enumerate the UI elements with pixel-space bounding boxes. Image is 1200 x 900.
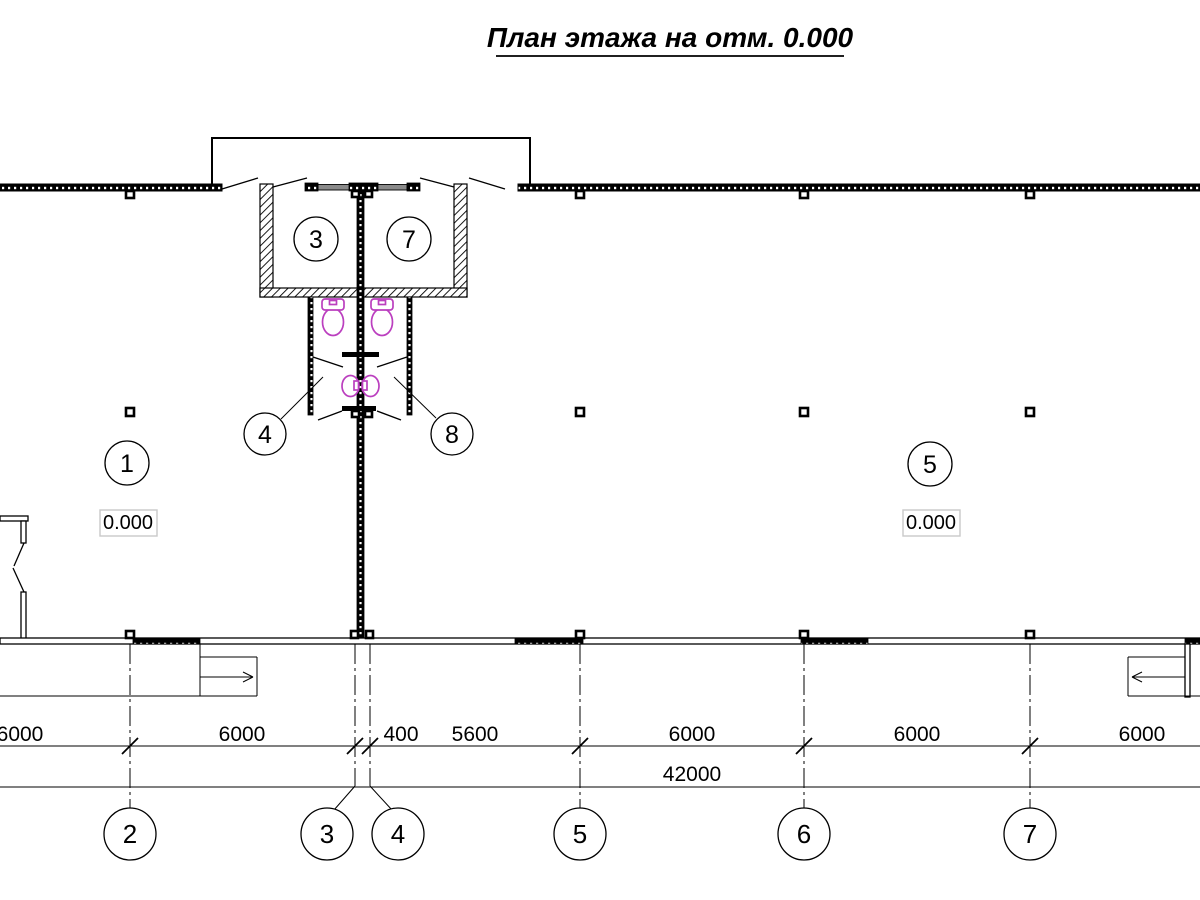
room-tag-7: 7 — [387, 217, 431, 261]
toilet-bowl-icon — [323, 309, 344, 336]
axis-label: 2 — [123, 819, 137, 849]
axis-label: 3 — [320, 819, 334, 849]
leader-line-4 — [281, 377, 323, 419]
wall-cap — [305, 183, 318, 191]
door-swing — [222, 178, 258, 189]
hatched-wall-left — [260, 184, 273, 297]
door-swing — [313, 357, 343, 367]
canopy-outline — [212, 138, 530, 184]
room-label: 3 — [309, 226, 323, 254]
partition-tab — [365, 411, 372, 417]
column-marker — [576, 191, 584, 198]
partition-tab — [365, 191, 372, 197]
axis-label: 4 — [391, 819, 405, 849]
column-marker — [351, 631, 358, 638]
room-tag-5: 5 — [908, 442, 952, 486]
column-marker — [366, 631, 373, 638]
dim-label: 6000 — [894, 723, 941, 746]
dim-label: 6000 — [1119, 723, 1166, 746]
leader-line-8 — [394, 377, 436, 418]
room-tag-8: 8 — [431, 413, 473, 455]
axis-bubble-6: 6 — [778, 808, 830, 860]
column-marker — [126, 191, 134, 198]
dim-label: 6000 — [219, 723, 266, 746]
room-tag-3: 3 — [294, 217, 338, 261]
room-tag-1: 1 — [105, 441, 149, 485]
partition-tab — [352, 191, 359, 197]
page-title: План этажа на отм. 0.000 — [487, 22, 854, 53]
column-marker — [1026, 631, 1034, 638]
elevation-mark-left: 0.000 — [100, 510, 157, 536]
column-marker — [800, 191, 808, 198]
column-marker — [800, 631, 808, 638]
column-marker — [576, 408, 584, 416]
axis-bubble-2: 2 — [104, 808, 156, 860]
room-label: 8 — [445, 421, 459, 449]
column-marker — [1026, 191, 1034, 198]
column-marker — [800, 408, 808, 416]
stall-wall-left — [308, 297, 313, 415]
room-tag-4: 4 — [244, 413, 286, 455]
dim-label: 400 — [383, 723, 418, 746]
sink-tap-icon — [354, 381, 359, 390]
elevation-value: 0.000 — [103, 512, 153, 534]
toilet-bowl-icon — [372, 309, 393, 336]
door-swing — [377, 411, 401, 420]
dim-label: 5600 — [452, 723, 499, 746]
axis-bubble-3: 3 — [301, 808, 353, 860]
hatched-wall-right — [454, 184, 467, 297]
door-swing — [273, 178, 307, 187]
toilet-button-icon — [379, 301, 386, 305]
dim-label: 6000 — [669, 723, 716, 746]
room-label: 7 — [402, 226, 416, 254]
room-label: 4 — [258, 421, 272, 449]
plan-canvas: План этажа на отм. 0.000 — [0, 0, 1200, 900]
axis-bubble-4: 4 — [372, 808, 424, 860]
sink-tap-icon — [363, 381, 368, 390]
direction-arrow-left-icon — [1132, 672, 1185, 682]
door-swing — [377, 357, 407, 367]
column-marker — [1026, 408, 1034, 416]
door-leaf — [14, 543, 24, 566]
bottom-exterior-wall — [0, 631, 1200, 644]
axis-bubble-7: 7 — [1004, 808, 1056, 860]
door-swing — [469, 178, 505, 189]
entrance-platform-left — [0, 644, 257, 696]
room-tags: 3 7 4 8 1 5 — [105, 217, 952, 486]
entrance-platform-right — [1128, 644, 1200, 697]
axis-label: 6 — [797, 819, 811, 849]
column-marker — [126, 408, 134, 416]
dimension-lines — [0, 738, 1200, 787]
west-entrance — [0, 516, 28, 639]
axis-label: 5 — [573, 819, 587, 849]
direction-arrow-right-icon — [200, 672, 253, 682]
elevation-mark-right: 0.000 — [903, 510, 960, 536]
dim-total-label: 42000 — [663, 763, 721, 786]
door-swing — [318, 411, 342, 420]
door-swing — [420, 178, 454, 187]
partition-tab — [352, 411, 359, 417]
column-marker — [576, 631, 584, 638]
top-exterior-wall — [0, 184, 1200, 198]
elevation-value: 0.000 — [906, 512, 956, 534]
wall-cap — [407, 183, 420, 191]
drawing-title: План этажа на отм. 0.000 — [487, 22, 854, 56]
dimension-labels: 6000 6000 400 5600 6000 6000 6000 42000 — [0, 723, 1165, 786]
dim-label: 6000 — [0, 723, 43, 746]
axis-bubbles: 2 3 4 5 6 7 — [104, 808, 1056, 860]
axis-bubble-5: 5 — [554, 808, 606, 860]
elevation-marks: 0.000 0.000 — [100, 510, 960, 536]
floor-plan-drawing: План этажа на отм. 0.000 — [0, 0, 1200, 900]
toilet-button-icon — [330, 301, 337, 305]
room-label: 5 — [923, 451, 937, 479]
stall-partition-bar — [342, 352, 379, 357]
column-marker — [126, 631, 134, 638]
stall-wall-right — [407, 297, 412, 415]
door-leaf — [13, 568, 24, 592]
axis-label: 7 — [1023, 819, 1037, 849]
room-label: 1 — [120, 450, 134, 478]
